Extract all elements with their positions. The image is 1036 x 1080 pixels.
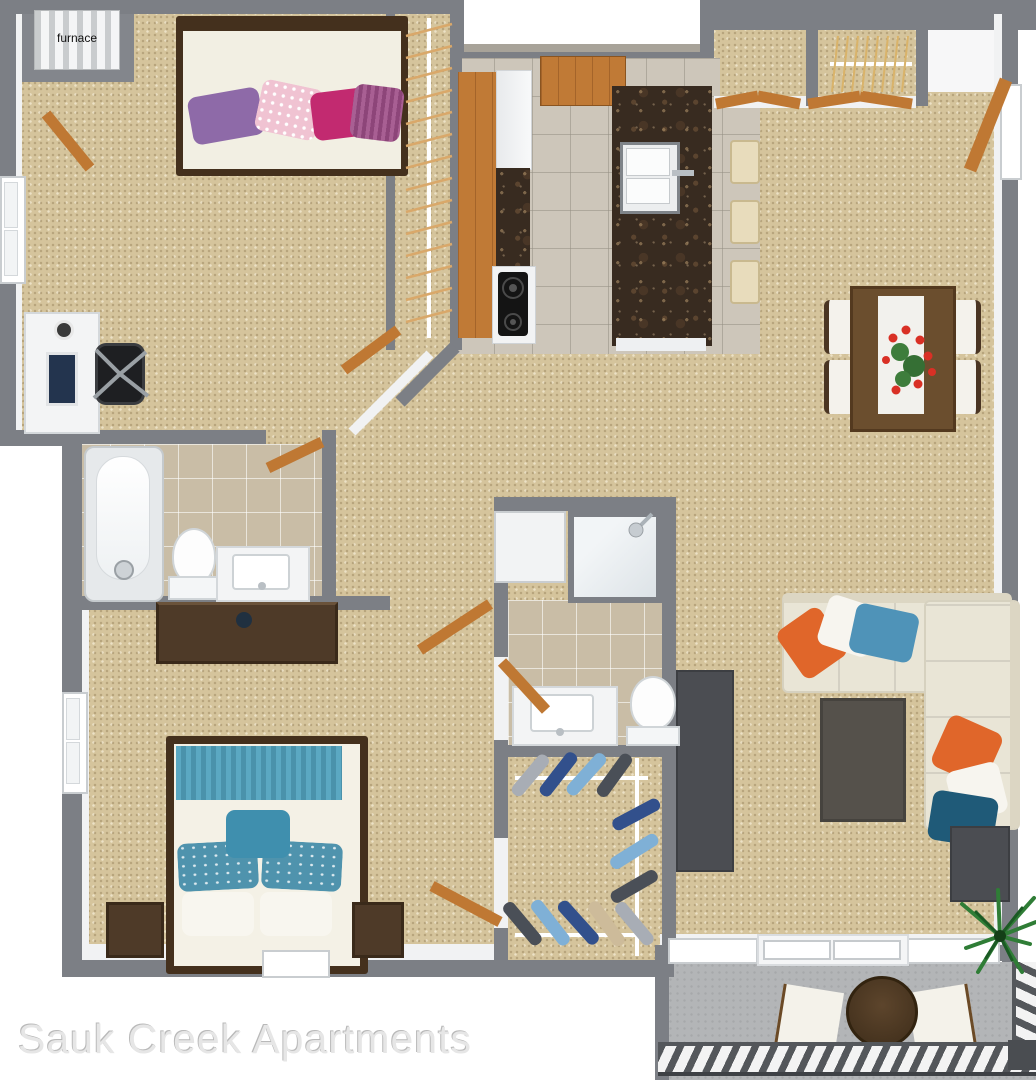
bar-stool-1 xyxy=(730,140,760,184)
laundry-appliance xyxy=(494,511,566,583)
sliding-door-panel-1 xyxy=(763,940,831,960)
walkin-closet-floor xyxy=(508,757,662,960)
window-bedroom2-left-pane xyxy=(66,698,80,740)
wall-bathroom1-right xyxy=(322,430,336,610)
wall-bathblock-top xyxy=(494,497,676,511)
window-living-bottom-1 xyxy=(668,938,758,964)
wall-bathblock-left2 xyxy=(494,740,508,840)
nightstand-left xyxy=(106,902,164,958)
patio-railing-bottom xyxy=(658,1042,1036,1076)
patio-table xyxy=(846,976,918,1048)
brand-text: Sauk Creek Apartments xyxy=(18,1016,472,1063)
island-side-panel xyxy=(616,338,706,351)
wall-bottom-left xyxy=(62,960,674,977)
window-bedroom2-left-pane2 xyxy=(66,742,80,784)
kitchen-fridge-counter xyxy=(496,70,532,170)
coat-closet-floor xyxy=(720,30,808,102)
furnace-label: furnace xyxy=(35,31,119,45)
dining-table-runner xyxy=(878,296,924,414)
toilet1-tank xyxy=(168,576,220,600)
bed2-blanket xyxy=(176,746,342,800)
dresser-knob xyxy=(236,612,252,628)
shower-glass xyxy=(574,517,656,597)
walkin-door-sill xyxy=(494,838,508,928)
wall-closet-divider-2 xyxy=(916,14,928,106)
bed2-pillow-white-right xyxy=(260,892,332,936)
bed2-pillow-white-left xyxy=(182,892,254,936)
toilet2-bowl xyxy=(630,676,676,730)
bed2-accent-pillow xyxy=(226,810,290,858)
outside-left-patch xyxy=(0,446,62,1080)
wall-bath2-closet-divider xyxy=(508,745,662,757)
furnace-unit: furnace xyxy=(34,10,120,70)
window-bedroom1-left-pane xyxy=(4,182,18,228)
floor-plan-canvas: furnace xyxy=(0,0,1036,1080)
window-bedroom2-bottom xyxy=(262,950,330,978)
island-sink-basin-top xyxy=(626,148,670,176)
bed1-pillow-striped xyxy=(349,83,405,143)
tv-console xyxy=(676,670,734,872)
window-living-bottom-2 xyxy=(906,938,1000,964)
toilet2-tank xyxy=(626,726,680,746)
bar-stool-2 xyxy=(730,200,760,244)
nightstand-right xyxy=(352,902,404,958)
desk-lamp xyxy=(54,320,74,340)
wall-top-right xyxy=(712,0,1036,14)
desk-monitor xyxy=(46,352,78,406)
window-bedroom1-left-pane2 xyxy=(4,230,18,276)
vanity2-sink xyxy=(530,694,594,732)
vanity1-sink xyxy=(232,554,290,590)
entry-landing xyxy=(916,30,1004,92)
kitchen-island xyxy=(612,86,712,346)
coffee-table xyxy=(820,698,906,822)
wall-bedroom2-right-stub xyxy=(494,928,508,962)
window-living-right xyxy=(1000,84,1022,180)
patio-railing-corner xyxy=(1008,1040,1036,1070)
wall-notch-right xyxy=(700,0,714,58)
bath2-door-sill xyxy=(494,657,508,740)
bathtub-basin xyxy=(96,456,150,580)
sliding-door-panel-2 xyxy=(833,940,901,960)
bar-stool-3 xyxy=(730,260,760,304)
wall-closet-divider-1 xyxy=(806,14,818,106)
wall-bedroom2-top-stub xyxy=(334,596,390,610)
stove-cooktop xyxy=(498,272,528,336)
top-notch-counter xyxy=(452,0,714,46)
office-chair xyxy=(98,346,142,402)
dresser xyxy=(156,602,338,664)
entry-closet-floor xyxy=(818,30,916,102)
side-cabinet xyxy=(950,826,1010,902)
kitchen-granite-counter xyxy=(496,168,530,266)
kitchen-cabinet-run xyxy=(458,72,496,338)
island-sink-basin-bottom xyxy=(626,178,670,204)
